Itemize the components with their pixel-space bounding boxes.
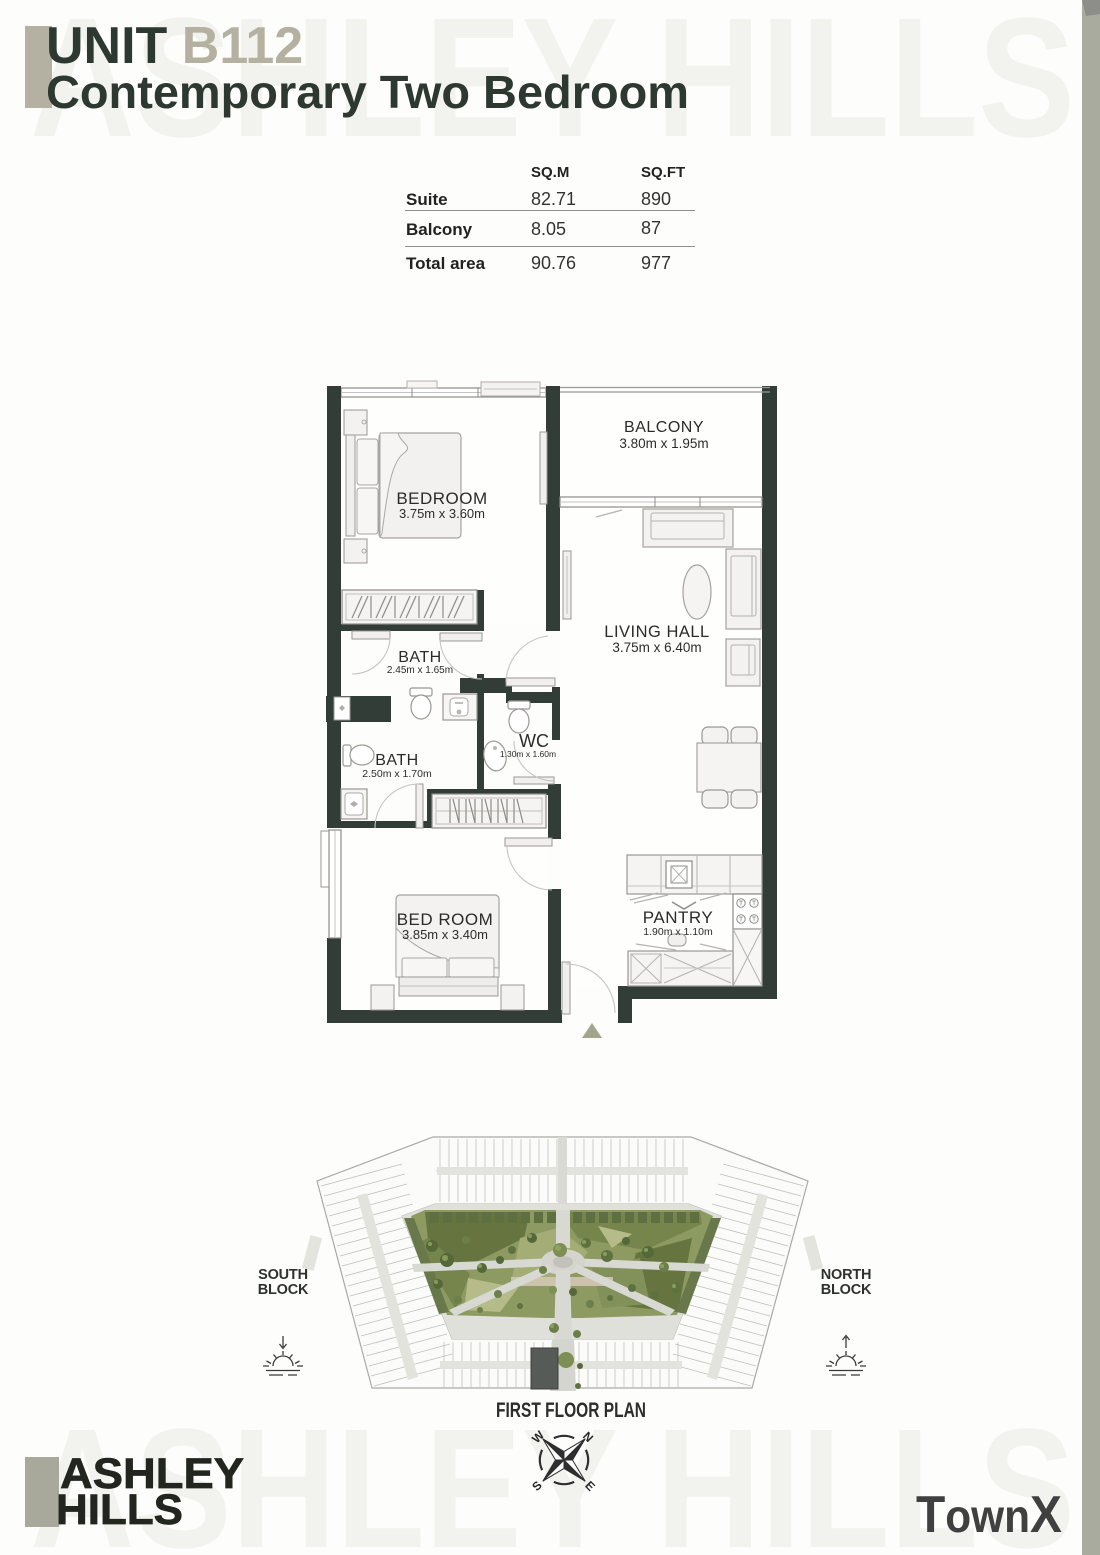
svg-text:NORTH: NORTH: [821, 1267, 872, 1283]
svg-text:SQ.M: SQ.M: [531, 164, 569, 181]
svg-text:Suite: Suite: [406, 190, 448, 209]
svg-text:FIRST FLOOR PLAN: FIRST FLOOR PLAN: [496, 1399, 646, 1422]
svg-text:TownX: TownX: [916, 1486, 1062, 1544]
svg-text:82.71: 82.71: [531, 189, 576, 209]
svg-text:3.75m x 3.60m: 3.75m x 3.60m: [399, 506, 485, 521]
svg-text:1.30m x 1.60m: 1.30m x 1.60m: [500, 749, 556, 759]
svg-text:BLOCK: BLOCK: [258, 1282, 309, 1298]
svg-text:3.75m x 6.40m: 3.75m x 6.40m: [612, 640, 701, 655]
svg-text:Contemporary Two Bedroom: Contemporary Two Bedroom: [46, 66, 689, 118]
svg-text:2.50m x 1.70m: 2.50m x 1.70m: [362, 768, 432, 780]
svg-text:BALCONY: BALCONY: [624, 419, 704, 436]
svg-text:BLOCK: BLOCK: [821, 1282, 872, 1298]
svg-text:1.90m x 1.10m: 1.90m x 1.10m: [643, 926, 713, 938]
svg-text:PANTRY: PANTRY: [643, 908, 713, 927]
svg-text:3.85m x 3.40m: 3.85m x 3.40m: [402, 927, 488, 942]
svg-text:2.45m x 1.65m: 2.45m x 1.65m: [387, 665, 453, 676]
svg-text:SOUTH: SOUTH: [258, 1267, 308, 1283]
svg-text:BATH: BATH: [398, 649, 441, 666]
svg-text:87: 87: [641, 218, 661, 238]
svg-text:977: 977: [641, 253, 671, 273]
svg-text:3.80m x 1.95m: 3.80m x 1.95m: [619, 436, 708, 451]
svg-text:Balcony: Balcony: [406, 220, 473, 239]
svg-text:890: 890: [641, 189, 671, 209]
svg-text:8.05: 8.05: [531, 219, 566, 239]
svg-text:HILLS: HILLS: [56, 1486, 183, 1534]
svg-text:BATH: BATH: [375, 752, 418, 769]
svg-text:LIVING HALL: LIVING HALL: [604, 623, 709, 641]
svg-text:WC: WC: [519, 731, 549, 751]
svg-text:Total area: Total area: [406, 254, 486, 273]
svg-text:90.76: 90.76: [531, 253, 576, 273]
svg-text:SQ.FT: SQ.FT: [641, 164, 685, 181]
